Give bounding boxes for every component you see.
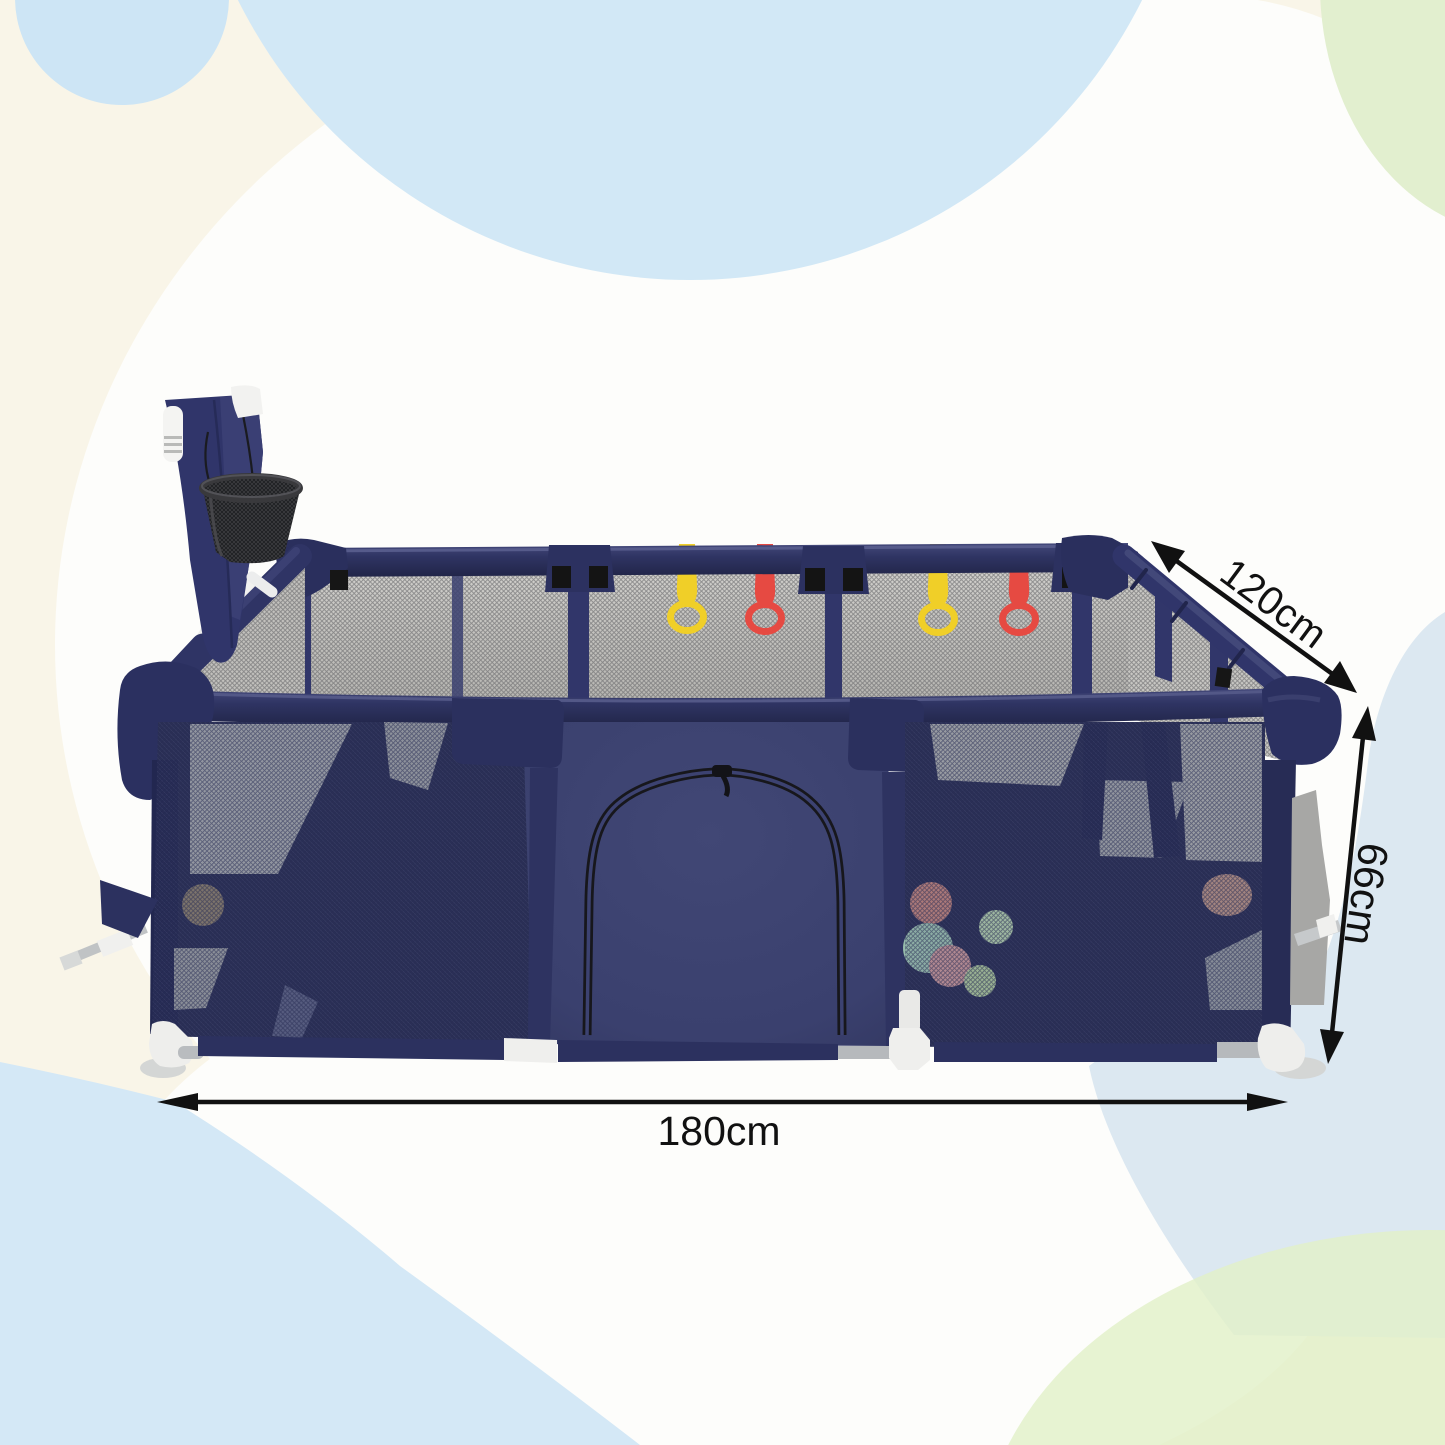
svg-text:180cm: 180cm — [657, 1108, 780, 1154]
